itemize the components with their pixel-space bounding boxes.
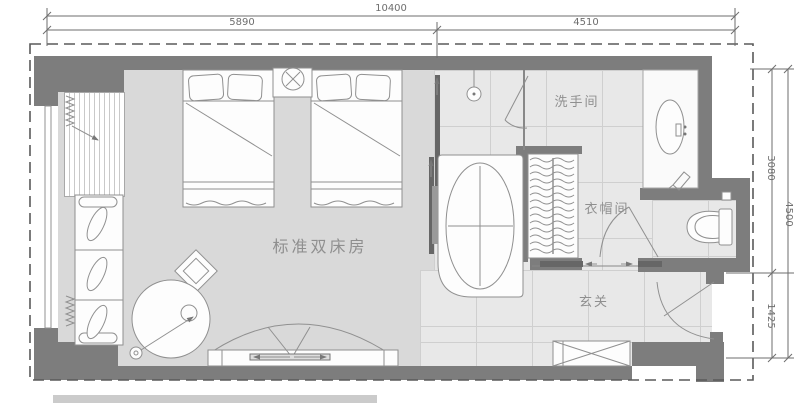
- faucet: [676, 124, 681, 136]
- floor-plan-linework: [0, 0, 800, 403]
- dim-top-right: 4510: [536, 17, 636, 29]
- dim-right-total: 4500: [782, 194, 794, 234]
- dim-right-lower: 1425: [764, 296, 776, 336]
- tub-faucet-deck: [432, 186, 438, 244]
- pillow: [188, 74, 224, 101]
- luggage-rack: [553, 341, 630, 366]
- toilet-tank: [719, 209, 732, 245]
- sliding-panel: [638, 261, 662, 267]
- rug-arc: [213, 324, 385, 351]
- pillow: [227, 74, 262, 101]
- sliding-panel: [540, 261, 583, 267]
- nightstand: [273, 68, 312, 97]
- toilet: [687, 192, 732, 245]
- bed-1: [183, 70, 274, 207]
- tp-holder: [722, 192, 731, 200]
- label-bathroom: 洗手间: [537, 96, 617, 110]
- label-bedroom: 标准双床房: [240, 238, 400, 256]
- pillow: [355, 74, 390, 101]
- window-bench: [75, 195, 123, 345]
- shower-area: [467, 70, 528, 150]
- bed-2: [311, 70, 402, 207]
- dim-right-upper: 3080: [764, 148, 776, 188]
- bench-bolster: [79, 333, 117, 343]
- tv-console: [208, 324, 398, 366]
- entry-door: [657, 282, 714, 339]
- vanity: [643, 70, 698, 190]
- label-cloakroom: 衣帽间: [567, 203, 647, 217]
- entry-sliding-doors: [532, 261, 662, 267]
- bench-bolster: [79, 197, 117, 207]
- round-table: [132, 280, 210, 358]
- floor-lamp: [130, 347, 142, 359]
- dim-top-left: 5890: [192, 17, 292, 29]
- floor-plan-canvas: 标准双床房 洗手间 衣帽间 玄关 10400 5890 4510 3080 45…: [0, 0, 800, 403]
- dim-top-total: 10400: [341, 3, 441, 15]
- lounge-set: [130, 250, 217, 359]
- window-glazing: [45, 106, 51, 328]
- pillow: [316, 74, 352, 101]
- label-entry: 玄关: [554, 296, 634, 310]
- bathtub: [432, 155, 523, 297]
